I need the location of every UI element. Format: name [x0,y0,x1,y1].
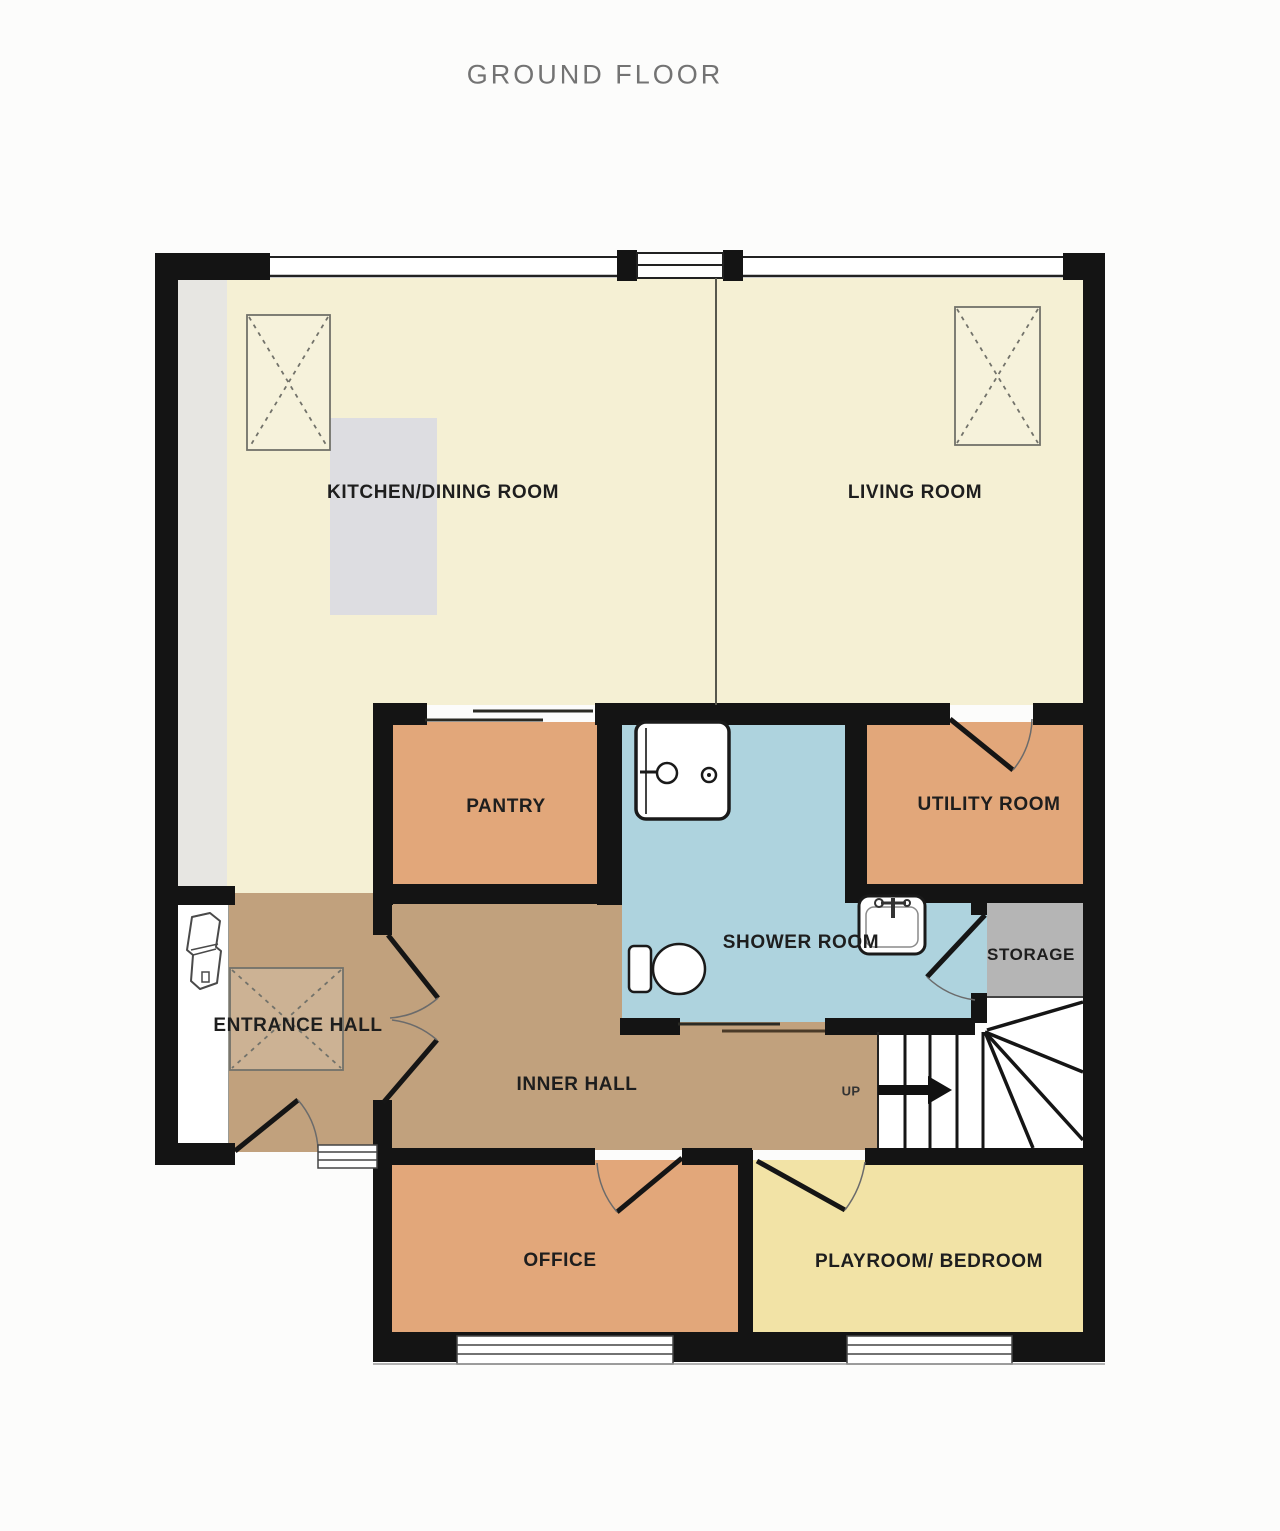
up-arrow-icon [878,1076,952,1104]
room-playroom-label: PLAYROOM/ BEDROOM [815,1251,1043,1273]
playroom-window-icon [847,1336,1012,1364]
window-cap-right [723,250,743,281]
stairs-up-label: UP [842,1084,861,1099]
room-pantry-label: PANTRY [466,796,546,818]
staircase [878,997,1083,1148]
toilet-icon [629,944,705,994]
office-door-icon [597,1158,682,1212]
room-utility-label: UTILITY ROOM [917,794,1060,816]
utility-door-icon [950,719,1032,770]
shower-tray-icon [636,722,729,819]
entrance-window-icon [318,1145,377,1168]
office-window-icon [457,1336,673,1364]
room-storage-label: STORAGE [987,945,1075,965]
room-kitchen-label: KITCHEN/DINING ROOM [327,482,559,504]
stair-winders [985,1002,1083,1148]
rooflight-icon-living [955,307,1040,445]
room-entrance-label: ENTRANCE HALL [213,1015,382,1037]
room-shower-label: SHOWER ROOM [723,932,880,954]
porch-furniture-icon [187,913,221,989]
shower-door-icon [927,915,985,1000]
entrance-double-door-icon [383,935,438,1103]
room-inner-label: INNER HALL [516,1074,637,1096]
top-glazing [270,250,1063,281]
room-living-label: LIVING ROOM [848,482,982,504]
floor-plan: GROUND FLOOR [0,0,1280,1531]
plan-linework [0,0,1280,1531]
front-door-icon [235,1100,318,1151]
rooflight-icon-kitchen [247,315,330,450]
sliding-doors [425,711,825,1031]
room-office-label: OFFICE [523,1250,596,1272]
playroom-door-icon [757,1161,865,1210]
window-cap-left [617,250,637,281]
